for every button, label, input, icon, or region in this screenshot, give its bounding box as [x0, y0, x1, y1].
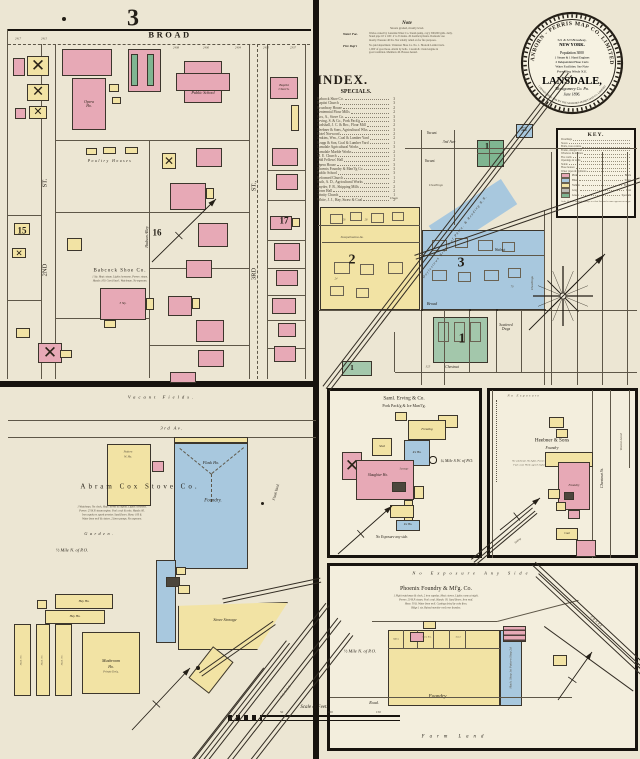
building — [478, 240, 493, 251]
building — [330, 286, 344, 296]
logo-prevailing-winds: Prevailing Winds N.E. — [556, 70, 587, 74]
note-fire-text: No paid department. Volunteer Hose Co. N… — [369, 44, 445, 54]
building — [156, 560, 176, 643]
index-subtitle: SPECIALS. — [317, 89, 395, 95]
railroad-track — [222, 577, 321, 605]
logo-city: NEW YORK. — [559, 42, 585, 47]
note-water-text: Works owned by Lansdale Water Co. Steam … — [369, 32, 452, 42]
building — [458, 272, 471, 282]
map-line — [395, 372, 637, 373]
map-label: Phoenix Foundry & Mf'g. Co. — [400, 586, 472, 592]
note-text-line: mostly. Pressure 40 lbs. Not wholly reli… — [369, 39, 452, 42]
map-line — [592, 390, 593, 558]
building — [360, 264, 374, 275]
map-line — [268, 295, 306, 296]
building — [196, 320, 224, 342]
map-label: Saml. Erving & Co. — [383, 396, 424, 401]
map-line — [150, 345, 250, 346]
compass-arrow-icon — [491, 489, 549, 539]
map-line — [8, 215, 42, 216]
building: 3 Sty. — [100, 288, 146, 320]
map-label: 2408 — [173, 46, 179, 49]
map-line — [388, 648, 500, 649]
map-label: Foundry — [545, 446, 558, 450]
map-label: Dwgs — [390, 197, 398, 201]
building — [67, 238, 82, 251]
map-label: Chestnut St. — [600, 468, 604, 488]
map-label: Vacant. — [427, 132, 438, 136]
building — [274, 243, 300, 261]
map-line — [629, 390, 630, 468]
building — [170, 372, 196, 383]
compass-arrow-icon — [123, 659, 199, 739]
map-label: Heebner & Sons — [535, 438, 569, 443]
map-note-block: Note Streets graded, mostly level. Water… — [343, 21, 471, 54]
map-label: Foundry. — [204, 498, 221, 503]
map-line — [610, 390, 611, 558]
map-label: Garden. — [84, 532, 115, 536]
map-line — [257, 44, 258, 379]
map-line — [330, 697, 572, 698]
map-label: Poultry Houses — [88, 159, 133, 163]
building: ✕ — [27, 84, 49, 101]
map-label: 28 — [365, 220, 368, 223]
map-label: Slaughter Ho. — [368, 474, 388, 478]
map-label: No Exposure Any Side — [412, 572, 531, 577]
building — [432, 270, 447, 281]
map-label: Broad — [427, 302, 437, 306]
map-label: Mushroom — [102, 659, 120, 663]
building: Freezing — [408, 420, 446, 440]
building — [112, 97, 121, 104]
map-label: Chestnut — [445, 365, 459, 369]
building — [564, 492, 574, 500]
map-label: ½ Mile N. of P.O. — [344, 650, 376, 655]
building: Hay Ho. — [55, 594, 113, 609]
logo-water-facilities: Water Facilities: See Note — [555, 64, 589, 68]
building — [196, 148, 222, 167]
building — [392, 212, 404, 221]
building: ✕ — [27, 56, 49, 76]
building: ✕ — [162, 153, 176, 169]
building — [37, 600, 47, 609]
map-label: 2ND — [43, 264, 50, 277]
sanborn-map-sheet: Note Streets graded, mostly level. Water… — [0, 0, 640, 759]
building — [104, 320, 116, 328]
building — [484, 270, 499, 281]
map-label: Mach. Shop 1st Pattern Shop 2d — [509, 647, 512, 688]
map-line — [489, 140, 490, 167]
map-label: Office — [393, 639, 399, 642]
map-label: Mush. Rm. — [21, 655, 24, 666]
map-line — [394, 332, 395, 372]
building — [330, 214, 343, 224]
map-label: 2406 — [203, 46, 209, 49]
building — [198, 350, 224, 367]
compass-arrow-icon — [549, 643, 601, 709]
scale-tick-label: 50 — [280, 710, 283, 714]
map-label: 17 — [280, 216, 289, 225]
building — [272, 148, 298, 166]
map-line — [318, 225, 420, 226]
map-label: 2 — [349, 254, 356, 269]
index-entry: White, J. J., Hay, Straw & Coal2 — [317, 198, 395, 202]
map-label: Ho. — [108, 665, 114, 669]
map-label: Flask Yard. — [272, 483, 280, 501]
map-line — [449, 630, 450, 648]
map-line — [305, 44, 306, 379]
building — [131, 54, 138, 86]
building — [392, 482, 406, 492]
building — [103, 147, 116, 154]
map-label: 70 — [511, 287, 514, 290]
map-label: 3rd Ave — [443, 140, 456, 144]
building — [356, 288, 369, 298]
scale-rule — [228, 715, 400, 721]
map-label: Vacant. — [425, 160, 436, 164]
map-label: 2404 — [235, 46, 241, 49]
map-line — [268, 200, 306, 201]
map-line — [56, 140, 250, 141]
building: Opera Ho. — [72, 78, 106, 130]
map-label: 1 — [459, 333, 466, 348]
map-line — [268, 240, 306, 241]
map-label: BROAD — [148, 31, 191, 40]
building — [470, 322, 481, 342]
map-label: Core Rm. — [422, 637, 431, 640]
building — [147, 54, 154, 86]
index-title: INDEX. — [317, 72, 395, 88]
map-label: Susquehanna Av. — [341, 236, 364, 240]
building: Baptist Church. — [270, 77, 298, 99]
map-label: Sausage — [400, 469, 409, 472]
map-label: Bldgs 1 sty. Raised monitor roof over fo… — [411, 608, 461, 611]
building — [356, 460, 414, 500]
publisher-stamp-logo: SANBORN - PERRIS MAP CO. LIMITED COPYRIG… — [519, 10, 625, 116]
map-line — [496, 310, 497, 372]
building — [292, 218, 300, 227]
map-line — [403, 630, 404, 648]
building — [276, 174, 298, 190]
logo-population: Population 3000 — [560, 51, 584, 55]
building — [549, 417, 564, 428]
map-label: Farm Land — [422, 734, 489, 739]
map-label: 26 — [343, 220, 346, 223]
map-line — [267, 44, 268, 379]
map-label: Public School — [191, 91, 214, 95]
building: ✕ — [12, 248, 26, 258]
building — [276, 270, 298, 286]
note-water-label: Water Fac. — [343, 32, 369, 42]
building — [395, 412, 407, 421]
panel-divider-horizontal — [0, 381, 319, 387]
index-list: Babcock Shoe Co.3Baptist Church3Broadway… — [317, 97, 395, 202]
map-line — [268, 170, 306, 171]
map-label: 325 — [426, 365, 431, 368]
map-label: ST. — [43, 179, 50, 188]
map-label: No Exposure — [508, 394, 541, 397]
map-line — [7, 29, 8, 379]
index-block: INDEX. SPECIALS. Babcock Shoe Co.3Baptis… — [317, 72, 395, 202]
map-label: Scattered Dwgs — [499, 324, 512, 332]
building — [168, 296, 192, 316]
map-label: Private Dw'g. — [103, 672, 119, 675]
building — [278, 323, 296, 337]
building — [371, 213, 384, 223]
map-line — [268, 268, 306, 269]
building — [423, 621, 436, 629]
map-line — [433, 630, 434, 648]
map-line — [8, 437, 316, 438]
map-dot — [62, 17, 66, 21]
key-color-name: Yellow — [572, 184, 580, 188]
note-fire-label: Fire Dep't — [343, 44, 369, 54]
building: ✕ — [29, 106, 47, 119]
map-label: Stove Storage — [213, 618, 236, 622]
map-label: Abram Cox Stove Co. — [80, 483, 199, 490]
building — [109, 84, 119, 92]
scale-tick-label: 100 — [328, 710, 333, 714]
color-swatch — [561, 193, 570, 198]
map-line — [268, 320, 306, 321]
compass-rose-icon — [519, 252, 607, 340]
map-label: Road. — [369, 701, 378, 705]
map-label: ½ Mile N. of P.O. — [56, 549, 88, 554]
building: Hay Ho. — [45, 610, 105, 624]
map-label: W. Ho. — [124, 455, 132, 458]
map-label: Vacant Land — [620, 433, 624, 450]
map-line — [8, 300, 42, 301]
building — [16, 328, 30, 338]
map-label: 3RD — [252, 268, 259, 280]
building — [272, 298, 296, 314]
map-label: Sand — [456, 637, 461, 640]
building — [291, 105, 299, 131]
note-text-line: good condition. Members 40. Houses heate… — [369, 51, 445, 54]
building — [438, 322, 449, 342]
map-line — [322, 242, 420, 243]
map-label: 3 — [458, 257, 465, 272]
building — [176, 567, 186, 575]
map-label: Babcock Shoe Co. — [93, 268, 146, 273]
building — [350, 212, 362, 221]
map-dot — [261, 502, 264, 505]
building — [152, 461, 164, 472]
logo-engines: 1 Steam & 1 Hand Engines — [555, 56, 591, 60]
note-text-line: No paid department. Volunteer Hose Co. N… — [369, 44, 445, 47]
map-label: 2400 — [263, 46, 269, 49]
key-rows: DwellingsStoresBrick, iron corniceFrame,… — [561, 138, 631, 173]
building: Shed — [372, 438, 392, 456]
map-line — [465, 630, 466, 648]
map-label: Pork Pack'g & Ice Man'f'g. — [382, 404, 425, 408]
compass-arrow-icon — [143, 190, 225, 271]
building — [503, 626, 526, 642]
map-label: 2337 — [290, 46, 296, 49]
building — [13, 58, 25, 76]
map-label: 3 — [127, 6, 139, 31]
note-line: Streets graded, mostly level. — [343, 26, 471, 30]
building — [414, 486, 424, 499]
map-label: Mush. Rm. — [62, 655, 65, 666]
map-label: Mush. Rm. — [42, 655, 45, 666]
map-label: Walnut — [495, 248, 506, 252]
building — [556, 502, 566, 511]
building: ✕ — [38, 343, 62, 363]
map-label: Water from well & cistern. 2 force pumps… — [82, 519, 142, 522]
map-label: 3rd Av. — [160, 427, 183, 432]
building — [576, 540, 596, 557]
building — [274, 346, 296, 362]
building — [548, 489, 560, 499]
map-line — [454, 130, 455, 225]
compass-arrow-icon — [329, 497, 401, 563]
map-label: 24 — [335, 279, 338, 282]
map-label: 2417 — [15, 37, 21, 40]
map-label: Pattern — [124, 450, 133, 453]
building — [388, 262, 403, 274]
building: Coal — [556, 528, 578, 540]
building — [15, 108, 26, 119]
building — [146, 298, 154, 310]
map-label: 15 — [18, 226, 27, 235]
building — [62, 49, 112, 76]
map-line — [8, 420, 316, 421]
map-label: Flask Ho. — [203, 461, 220, 465]
building — [178, 585, 190, 594]
map-label: 2415 — [41, 37, 47, 40]
scale-tick-label: 150 — [376, 710, 381, 714]
map-label: ¾ Mile S.W. of P.O. — [441, 459, 474, 463]
building — [60, 350, 72, 358]
building — [176, 73, 230, 91]
map-label: ST., — [252, 181, 259, 191]
map-line — [496, 400, 497, 482]
building — [125, 147, 138, 154]
map-dot — [429, 456, 436, 463]
building — [192, 298, 200, 309]
building — [568, 510, 580, 519]
logo-hose-carts: 2 Independent Hose Carts — [555, 60, 589, 64]
map-label: Dwellings — [429, 184, 443, 188]
map-label: Hands: 100. Cem'd bas't. Watchman. No ex… — [93, 281, 148, 284]
map-label: Vacant Fields. — [128, 396, 196, 401]
index-entry-name: White, J. J., Hay, Straw & Coal — [317, 198, 362, 202]
map-label: 1 — [485, 142, 489, 151]
building — [86, 148, 97, 155]
